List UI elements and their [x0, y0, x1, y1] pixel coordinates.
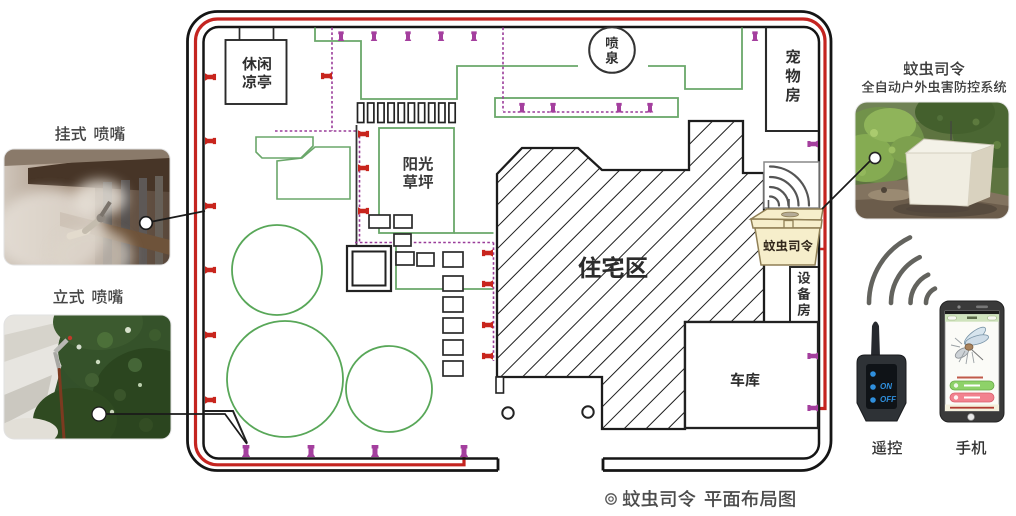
svg-text:ON: ON [880, 382, 892, 391]
svg-text:OFF: OFF [880, 395, 897, 404]
